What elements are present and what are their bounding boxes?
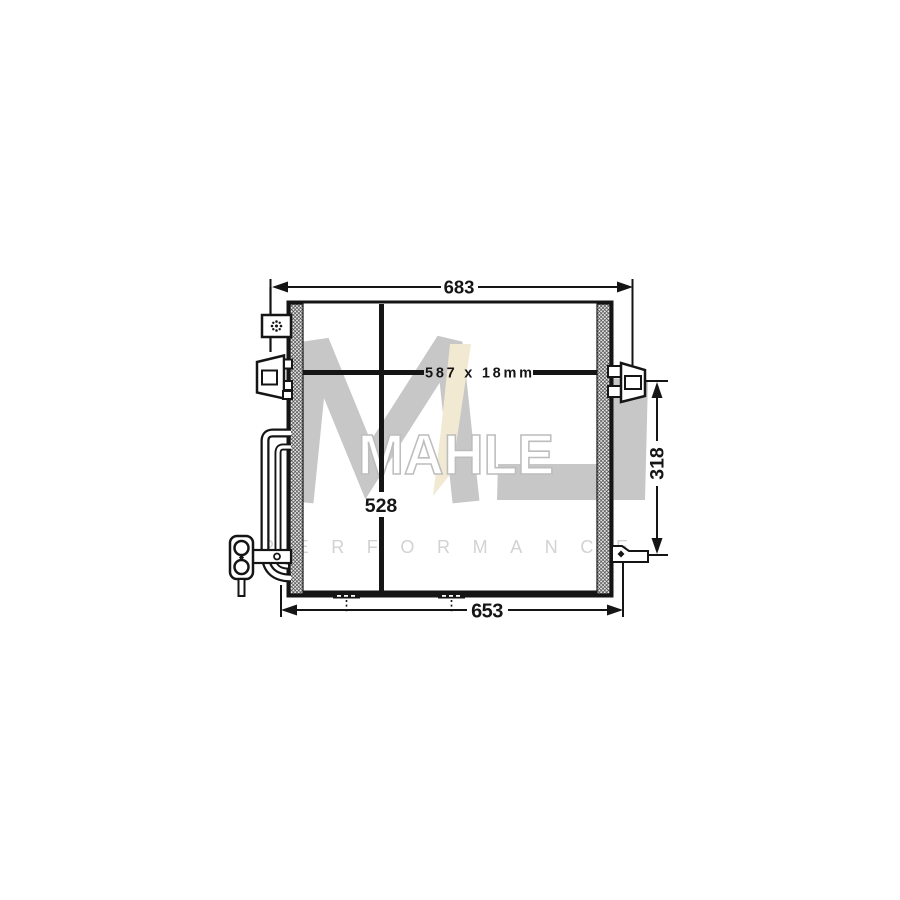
dim-overall-width-label: 683: [444, 277, 475, 298]
left-bracket-tab-bottom: [284, 381, 292, 390]
product-drawing-page: MAHLE PERFORMANCE: [0, 0, 900, 900]
core-width-line-right: [533, 370, 597, 375]
fitting-stem: [239, 579, 245, 596]
right-lower-tab: [612, 546, 648, 562]
fitting-arm: [250, 550, 291, 563]
watermark-brand-text: MAHLE: [358, 423, 554, 487]
core-height-line-upper: [379, 304, 384, 492]
fitting-port-top: [235, 541, 249, 555]
dim-core-height-label: 528: [365, 495, 398, 517]
right-bracket-hole: [625, 376, 641, 389]
dim683-arrow-left: [272, 282, 288, 293]
left-bracket-hole: [262, 371, 277, 385]
dim318-arrow-down: [652, 538, 663, 554]
dim-bracket-offset-label: 318: [647, 447, 669, 480]
right-bracket-tab-top: [608, 366, 621, 377]
core-width-line-left: [303, 370, 424, 375]
condenser-technical-drawing: MAHLE PERFORMANCE: [0, 0, 900, 900]
core-height-line-lower: [379, 517, 384, 593]
dim653-arrow-right: [607, 605, 623, 616]
watermark-subtitle-text: PERFORMANCE: [262, 537, 628, 557]
fitting-port-bottom: [235, 560, 249, 574]
left-bracket-foot: [283, 391, 292, 399]
right-tank-hatch: [597, 304, 610, 594]
foot-right-crimps: [442, 595, 460, 597]
foot-left-crimps: [337, 595, 355, 597]
dim-core-size-label: 587 x 18mm: [425, 366, 532, 382]
dim683-arrow-right: [617, 282, 633, 293]
left-bracket-tab-top: [284, 360, 292, 369]
dim653-arrow-left: [281, 605, 297, 616]
dim-lower-width-label: 653: [471, 601, 503, 623]
right-bracket-tab-bottom: [608, 386, 621, 397]
dim318-arrow-up: [652, 382, 663, 398]
mahle-watermark: MAHLE PERFORMANCE: [262, 343, 648, 557]
fitting-arm-hole: [274, 554, 280, 560]
